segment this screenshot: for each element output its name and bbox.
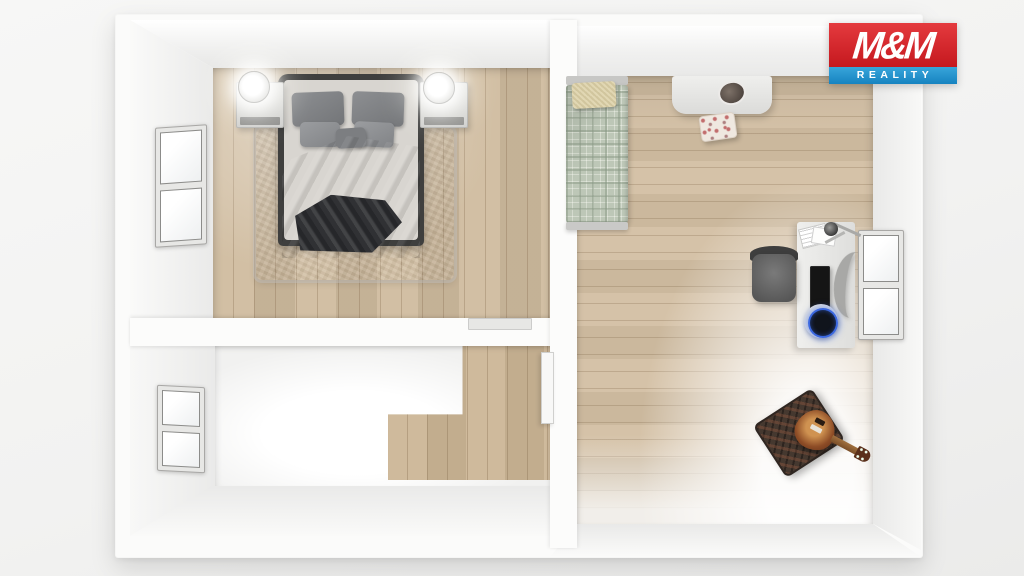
mm-reality-logo: M&M REALITY	[829, 23, 957, 84]
logo-blue-bar: REALITY	[829, 67, 957, 84]
hallway-open-door	[541, 352, 554, 424]
bedroom-window	[155, 124, 207, 248]
beige-pillow	[571, 81, 616, 109]
living-room-bottom-wall-face	[550, 524, 921, 557]
logo-reality-text: REALITY	[853, 70, 933, 81]
lit-table-lamp-right	[423, 72, 455, 104]
window-pane	[160, 188, 202, 243]
window-pane	[162, 390, 200, 427]
logo-red-box: M&M	[829, 23, 957, 67]
floor-plan-render: M&M REALITY	[0, 0, 1024, 576]
blue-glow-speaker	[808, 308, 838, 338]
single-bed-footboard	[566, 222, 628, 230]
hallway-window	[157, 385, 205, 474]
desk-lamp-head	[824, 222, 838, 236]
lit-table-lamp-left	[238, 71, 270, 103]
window-pane	[160, 130, 202, 185]
office-chair-seat	[752, 254, 796, 302]
bedroom-door-threshold	[468, 318, 532, 330]
logo-mm-text: M&M	[851, 26, 934, 64]
floral-stool	[698, 112, 737, 143]
window-pane	[162, 431, 200, 468]
